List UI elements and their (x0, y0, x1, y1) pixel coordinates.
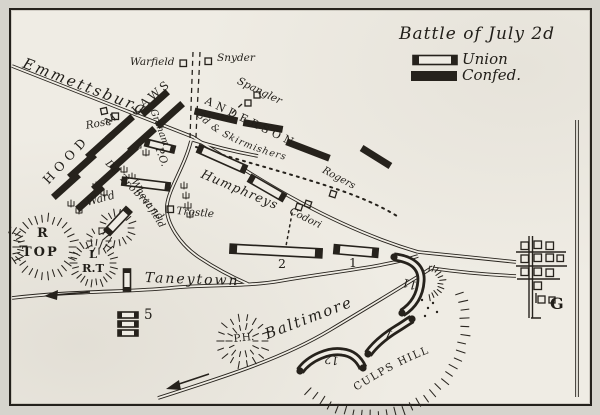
label-powers-hill: P.H. (233, 332, 255, 345)
legend-union-label: Union (462, 52, 508, 67)
warfield-house (180, 60, 187, 67)
label-gettysburg-g: G (550, 296, 564, 312)
spangler-house-1 (245, 100, 251, 106)
label-taneytown-road: Taneytown (145, 271, 240, 288)
label-little-round-top-l: L (89, 249, 97, 261)
legend-confed-swatch (411, 71, 457, 81)
codori-house-2 (304, 200, 312, 208)
union-bar-corps2 (230, 244, 322, 258)
label-little-round-top: R.T (82, 263, 104, 275)
battle-map-page: 3d & Skirmishers CULPS HILL Battle of Ju… (0, 0, 600, 415)
confed-bar (360, 145, 393, 169)
legend-title: Battle of July 2d (399, 26, 555, 43)
legend-confed-label: Confed. (462, 68, 521, 83)
label-snyder: Snyder (217, 53, 255, 64)
label-corps2: 2 (278, 258, 286, 271)
union-bar-corps5-2 (118, 321, 138, 327)
union-bar-ward (104, 207, 132, 236)
label-corps5: 5 (144, 309, 153, 323)
rogers-house (329, 190, 337, 198)
roads-inner-line (12, 66, 577, 398)
union-bar-corps5-3 (118, 330, 138, 336)
label-corps1: 1 (349, 257, 357, 270)
label-round-top: TOP (22, 246, 59, 259)
union-bar-corps5-1 (118, 312, 138, 318)
snyder-house (205, 58, 212, 65)
label-corps11: 11 (401, 276, 418, 291)
legend-union-swatch (413, 56, 457, 65)
label-warfield: Warfield (130, 57, 174, 68)
label-corps12: 12 (324, 353, 340, 366)
label-round-top-r: R (37, 227, 48, 240)
union-bar-lrt (124, 269, 131, 291)
